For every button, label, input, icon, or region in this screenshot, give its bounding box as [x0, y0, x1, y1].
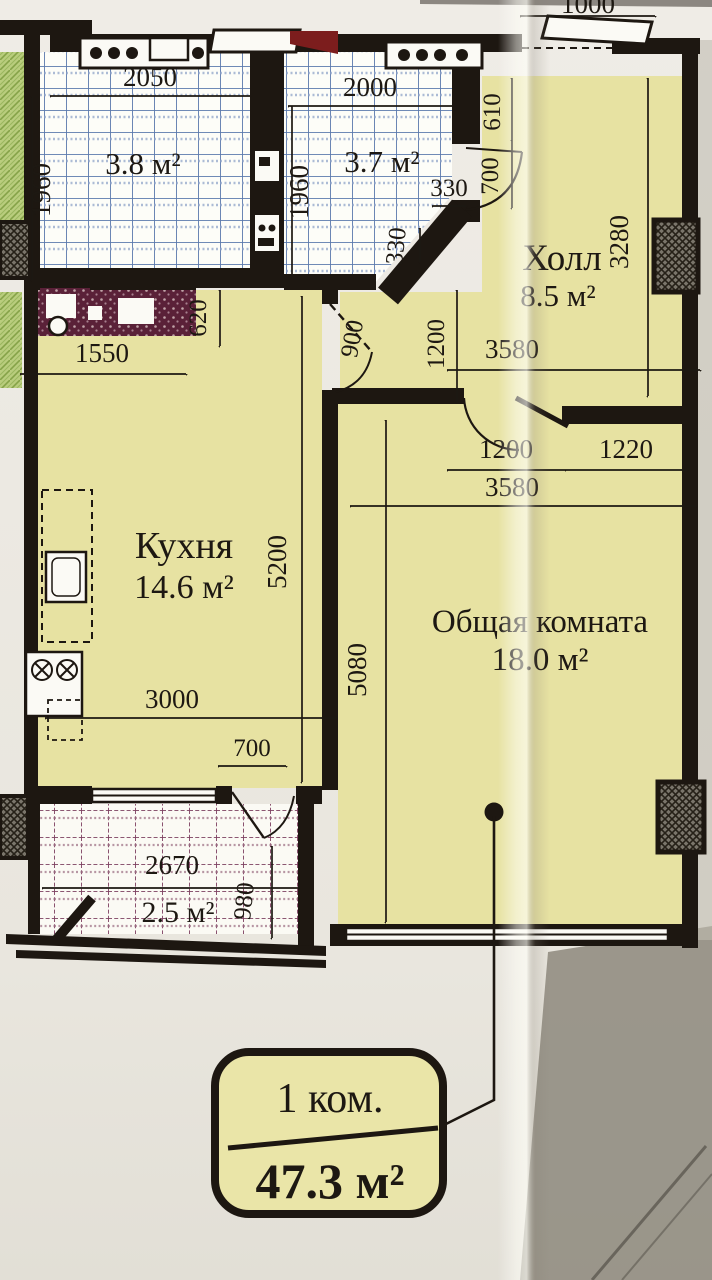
- door-leaf-icon: [210, 30, 300, 52]
- apartment-badge: 1 ком. 47.3 м²: [215, 1052, 443, 1214]
- plumbing-shaft-block: [38, 280, 196, 336]
- label-kitchen-area: 14.6 м²: [134, 569, 234, 606]
- dim-kitchen-d: 5200: [262, 535, 292, 589]
- entry-door-leaf-icon: [542, 16, 652, 44]
- paper-crease: [498, 0, 550, 1280]
- label-kitchen-name: Кухня: [135, 525, 233, 567]
- label-balcony-area: 2.5 м²: [142, 896, 215, 929]
- label-bath1-area: 3.8 м²: [105, 146, 180, 181]
- dim-bath2-w: 2000: [343, 72, 397, 102]
- dim-bath2-d: 1960: [284, 165, 314, 219]
- dim-balcony-d: 980: [229, 881, 260, 921]
- shaft-living-icon: [658, 782, 704, 852]
- dim-living-d: 5080: [342, 643, 372, 697]
- dim-entry: 1000: [561, 0, 615, 19]
- dim-bath1-d: 1960: [26, 163, 56, 217]
- toilet-icon: [49, 317, 67, 335]
- dim-bath1-w: 2050: [123, 62, 177, 92]
- dim-living-pier: 1220: [599, 434, 653, 464]
- window-kitchen-balcony: [92, 789, 216, 802]
- shaft-hall-icon: [654, 220, 698, 292]
- dim-kitchen-1550: 1550: [75, 338, 129, 368]
- dim-corridor-h: 1200: [423, 319, 450, 369]
- shaft-left-icon: [0, 222, 30, 278]
- shaft-left2-icon: [0, 796, 28, 858]
- dim-hall-depth: 3280: [604, 215, 634, 269]
- wall-cabinet-icon: [150, 38, 188, 60]
- dim-kitchen-w: 3000: [145, 684, 199, 714]
- dim-balcony-door: 700: [233, 735, 271, 762]
- floorplan-photo: 1000 2050 2000 330 330 1960 1960 610 700…: [0, 0, 712, 1280]
- dim-bath2-cut-b: 330: [381, 226, 412, 266]
- label-bath2-area: 3.7 м²: [344, 144, 419, 179]
- floorplan-drawing: 1000 2050 2000 330 330 1960 1960 610 700…: [0, 0, 712, 1280]
- dim-kitchen-620: 620: [185, 299, 212, 337]
- dim-bath2-cut-a: 330: [430, 175, 468, 202]
- badge-rooms-count: 1 ком.: [276, 1076, 383, 1122]
- badge-total-area: 47.3 м²: [255, 1153, 404, 1209]
- dim-balcony-w: 2670: [145, 850, 199, 880]
